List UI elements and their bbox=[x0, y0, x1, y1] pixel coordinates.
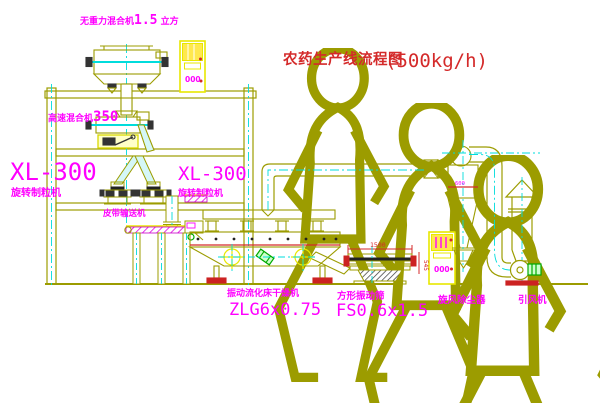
cabinet-roof-display: 000 bbox=[185, 75, 201, 84]
cyclone-label: 旋风除尘器 bbox=[437, 294, 486, 306]
person-roof bbox=[279, 49, 388, 378]
control-cabinet-roof: 000 bbox=[180, 41, 205, 92]
person-floor1 bbox=[369, 104, 484, 403]
fan-base bbox=[506, 281, 538, 285]
diagram-canvas: 000 bbox=[0, 0, 600, 403]
high-speed-mixer bbox=[86, 98, 154, 152]
diagram-capacity: (500kg/h) bbox=[385, 50, 488, 72]
roof-beam bbox=[45, 91, 256, 98]
dryer-label: 振动流化床干燥机 bbox=[227, 287, 299, 299]
cabinet-ground-display: 000 bbox=[434, 265, 450, 274]
screen-dim-length: 1500 bbox=[370, 241, 386, 249]
high-speed-mixer-label: 高速混合机350 bbox=[48, 109, 118, 125]
person-ground bbox=[593, 244, 600, 403]
belt-conveyor-label: 皮带输送机 bbox=[102, 208, 146, 219]
screen-model: FS0.6x1.5 bbox=[336, 301, 428, 321]
cyclone-dim: 600 bbox=[455, 181, 465, 187]
granulator-left bbox=[100, 182, 135, 204]
dryer-feet bbox=[207, 266, 332, 283]
y-splitter-chute bbox=[114, 156, 156, 184]
granulator-left-model: XL-300 bbox=[10, 158, 97, 186]
granulator-right-label: 旋转制粒机 bbox=[177, 187, 223, 199]
dryer-model: ZLG6x0.75 bbox=[229, 300, 321, 320]
granulator-left-label: 旋转制粒机 bbox=[10, 186, 61, 199]
gravity-mixer-label: 无重力混合机1.5 立方 bbox=[79, 13, 179, 28]
cad-flow-diagram: 000 bbox=[0, 0, 600, 403]
control-cabinet-ground: 000 bbox=[429, 232, 455, 284]
screen-dim-height: 545 bbox=[422, 260, 429, 271]
granulator-right-model: XL-300 bbox=[178, 163, 247, 185]
fan-label: 引风机 bbox=[518, 294, 547, 306]
dryer-feed-box bbox=[185, 221, 203, 240]
